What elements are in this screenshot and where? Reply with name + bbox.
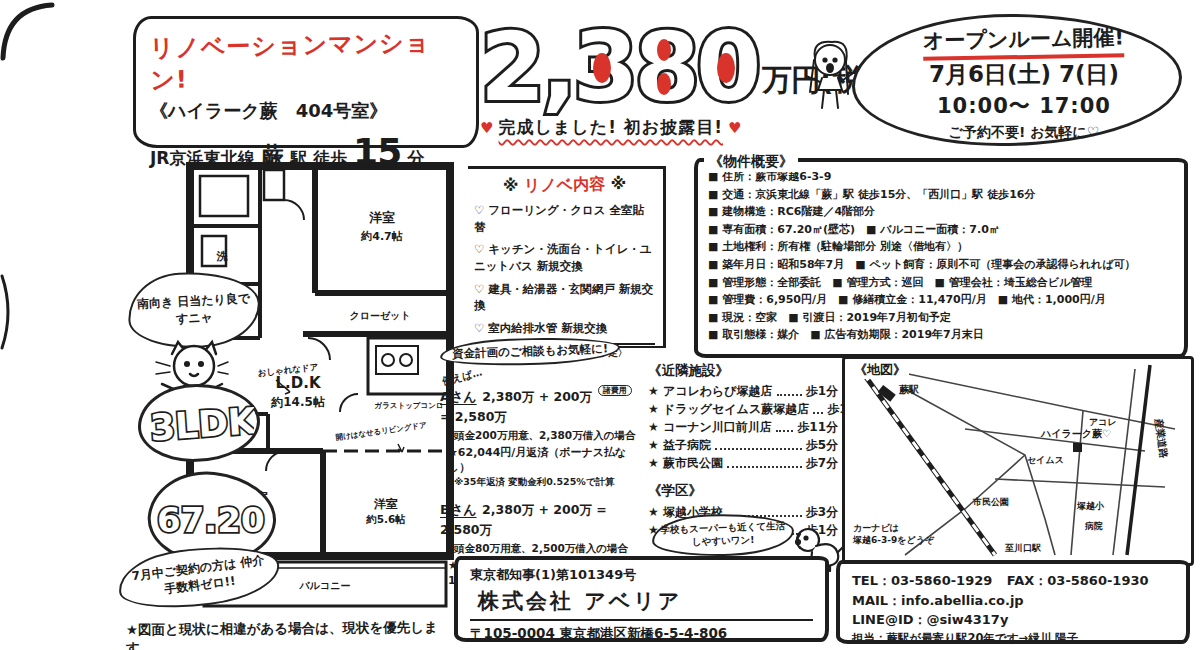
closet1-label: クローゼット (349, 310, 410, 321)
map-shop1-label: セイムス (1027, 455, 1064, 465)
price-amount: 2,380 (480, 16, 757, 116)
overview-box: 《物件概要》 ■ 住所：蕨市塚越6-3-9 ■ 交通：京浜東北線「蕨」駅 徒歩1… (694, 158, 1188, 358)
map-school-label: 塚越小 (1076, 501, 1105, 511)
contact-mail: MAIL：info.abellia.co.jp (852, 591, 1174, 611)
facility-name: ★ ドラッグセイムス蕨塚越店 (648, 400, 809, 418)
nearby-section: 《近隣施設》 ★ アコレわらび塚越店歩1分 ★ ドラッグセイムス蕨塚越店歩1分 … (648, 360, 838, 539)
overview-row: ■ 管理形態：全部委託 ■ 管理方式：巡回 ■ 管理会社：埼玉総合ビル管理 (708, 274, 1174, 292)
asterisk-icon: ※ (610, 174, 626, 193)
nearby-item: ★ 益子病院歩5分 (648, 436, 838, 454)
walk-time: 歩5分 (806, 436, 838, 454)
digit-accent (593, 53, 611, 83)
openroom-bubble: オープンルーム開催! 7月6日(土) 7(日) 10:00〜 17:00 ご予約… (852, 14, 1182, 146)
asterisk-icon: ※ (503, 176, 519, 195)
map-title: 《地図》 (851, 361, 909, 379)
nearby-item: ★ アコレわらび塚越店歩1分 (648, 382, 838, 400)
dotted-leader (777, 394, 802, 396)
facility-name: ★ 益子病院 (648, 436, 711, 454)
openroom-note: ご予約不要! お気軽に♡ (881, 124, 1167, 142)
room1-label: 洋室 (369, 210, 395, 225)
openroom-date: 7月6日(土) 7(日) (929, 61, 1119, 87)
renovation-item: ♡ 建具・給湯器・玄関網戸 新規交換 (474, 281, 655, 314)
digit-accent (657, 73, 671, 95)
ldk-bubble-art: 3LDK (144, 397, 254, 449)
map-direction-label: 至川口駅 (1004, 543, 1042, 553)
case-a-note: ※35年返済 変動金利0.525%で計算 (454, 476, 645, 489)
funding-section: 資金計画のご相談もお気軽に! 例えば… Aさん 2,380万 + 200万 諸費… (440, 338, 645, 560)
renovation-title: リノベ内容 (524, 174, 605, 194)
walk-time: 歩1分 (806, 382, 838, 400)
contact-person: 担当：蕨駅が最寄り駅20年です→緑川 陽子 (852, 630, 1174, 647)
nearby-header: 《近隣施設》 (648, 360, 838, 380)
overview-row: ■ 管理費：6,950円/月 ■ 修繕積立金：11,470円/月 ■ 地代：1,… (708, 291, 1174, 309)
map-road-label: 産業道路 (1153, 417, 1170, 460)
south-bubble-text: 南向き 日当たり良ですニャ (133, 290, 255, 330)
digit-accent (657, 39, 671, 61)
nearby-item: ★ 蕨市民公園歩7分 (648, 454, 838, 472)
case-b-cond: 頭金80万用意、2,500万借入の場合 (454, 542, 645, 556)
renovation-item: ♡ キッチン・洗面台・トイレ・ユニットバス 新規交換 (474, 241, 655, 274)
map-property-label: ハイラーク蕨♡ (1040, 428, 1111, 439)
washer-label: 洗 (216, 250, 229, 263)
overview-row: ■ 現況：空家 ■ 引渡日：2019年7月初旬予定 (708, 309, 1174, 327)
school-header: 《学区》 (648, 480, 838, 500)
title-box: リノベーションマンション! 《ハイラーク蕨 404号室》 JR京浜東北線 蕨 駅… (133, 16, 479, 148)
contact-box: TEL：03-5860-1929 FAX：03-5860-1930 MAIL：i… (836, 560, 1190, 644)
overview-row: ■ 取引態様：媒介 ■ 広告有効期限：2019年7月末日 (708, 326, 1174, 344)
overview-row: ■ 建物構造：RC6階建／4階部分 (708, 203, 1174, 221)
map-box: 《地図》 蕨駅 ハイラーク蕨♡ セイムス アコレ (842, 356, 1194, 566)
footer-disclaimer: ★図面と現状に相違がある場合は、現状を優先します。 (126, 619, 456, 650)
facility-name: ★ コーナン川口前川店 (648, 418, 772, 436)
renovation-header: ※ リノベ内容 ※ (474, 173, 655, 197)
overview-row: ■ 築年月日：昭和58年7月 ■ ペット飼育：原則不可（理事会の承認得られれば可… (708, 256, 1174, 274)
left-edge-doodle (0, 272, 16, 352)
ldk-bubble-text: 3LDK (149, 400, 254, 448)
case-b-name: Bさん (440, 502, 477, 517)
overview-row: ■ 専有面積：67.20㎡(壁芯) ■ バルコニー面積：7.0㎡ (708, 221, 1174, 239)
facility-name: ★ 蕨市民公園 (648, 454, 723, 472)
completion-text: 完成しました! 初お披露目! (499, 117, 723, 137)
map-park-label: 市民公園 (972, 497, 1009, 507)
dotted-leader (813, 412, 823, 414)
renovation-item: ♡ 室内給排水管 新規交換 (474, 320, 655, 337)
company-address: 〒105-0004 東京都港区新橋6-5-4-806 (470, 619, 813, 643)
price-amount-art: 2,380 (478, 16, 778, 116)
case-a-cond: 頭金200万用意、2,380万借入の場合 (454, 429, 645, 443)
case-a-pay: ★62,044円/月返済（ボーナス払なし） (448, 445, 645, 475)
size-bubble-text: 67.20 (157, 500, 265, 540)
walk-time: 歩11分 (797, 418, 838, 436)
case-a-formula: 2,380万 + 200万 (482, 389, 592, 404)
company-box: 東京都知事(1)第101349号 株式会社 アベリア 〒105-0004 東京都… (454, 556, 829, 642)
dotted-leader (727, 466, 802, 468)
nearby-item: ★ コーナン川口前川店歩11分 (648, 418, 838, 436)
heart-icon: ♥ (728, 119, 741, 137)
fax-number: FAX：03-5860-1930 (1007, 573, 1149, 588)
case-a-result: = 2,580万 (440, 409, 507, 424)
tel-number: TEL：03-5860-1929 (852, 573, 992, 588)
contact-line-id: LINE@ID：@siw4317y (852, 610, 1174, 630)
ldk-size: 約14.5帖 (270, 395, 326, 409)
map-hospital-label: 病院 (1084, 521, 1103, 531)
map-note-line1: カーナビは (853, 523, 899, 533)
flyer-page: リノベーションマンション! 《ハイラーク蕨 404号室》 JR京浜東北線 蕨 駅… (0, 0, 1200, 650)
corner-doodle (0, 0, 56, 62)
map-art: 蕨駅 ハイラーク蕨♡ セイムス アコレ 市民公園 塚越小 病院 産業道路 カーナ… (845, 359, 1185, 557)
balcony-label: バルコニー (299, 580, 351, 591)
walk-time: 歩7分 (806, 454, 838, 472)
overview-row: ■ 土地権利：所有権（駐輪場部分 別途〈借地有〉） (708, 238, 1174, 256)
company-name: 株式会社 アベリア (478, 587, 813, 615)
dotted-leader (776, 430, 794, 432)
room1-size: 約4.7帖 (360, 230, 403, 243)
flyer-title: リノベーションマンション! (149, 26, 462, 97)
openroom-title: オープンルーム開催! (923, 23, 1125, 61)
map-station-label: 蕨駅 (898, 384, 920, 395)
ldk-label: L.D.K (275, 374, 321, 392)
room3-label: 洋室 (373, 497, 398, 511)
digit-accent (717, 53, 735, 83)
size-bubble-art: 67.20 (150, 484, 273, 552)
heart-icon: ♥ (480, 119, 493, 137)
case-a-tag: 諸費用 (598, 385, 632, 396)
openroom-time: 10:00〜 17:00 (881, 92, 1167, 120)
room3-size: 約5.6帖 (365, 513, 406, 525)
facility-name: ★ アコレわらび塚越店 (648, 382, 773, 400)
renovation-box: ※ リノベ内容 ※ ♡ フローリング・クロス 全室貼替 ♡ キッチン・洗面台・ト… (468, 166, 666, 348)
dog-bubble-text: 学校もスーパーも近くて生活しやすいワン! (660, 520, 785, 547)
case-a-name: Aさん (440, 389, 477, 404)
overview-header: 《物件概要》 (704, 150, 798, 172)
map-shop2-label: アコレ (1089, 417, 1117, 427)
stove-note: ガラストップコンロ (374, 401, 443, 410)
contact-phone-row: TEL：03-5860-1929 FAX：03-5860-1930 (852, 571, 1174, 591)
girl-character-icon (800, 34, 856, 138)
renovation-list: ♡ フローリング・クロス 全室貼替 ♡ キッチン・洗面台・トイレ・ユニットバス … (474, 202, 655, 337)
dotted-leader (715, 448, 802, 450)
nearby-item: ★ ドラッグセイムス蕨塚越店歩1分 (648, 400, 838, 418)
building-name: 《ハイラーク蕨 404号室》 (150, 99, 462, 123)
map-note-line2: 塚越6-3-9をどうぞ (852, 535, 935, 545)
renovation-item: ♡ フローリング・クロス 全室貼替 (474, 202, 655, 235)
overview-row: ■ 交通：京浜東北線「蕨」駅 徒歩15分、「西川口」駅 徒歩16分 (708, 186, 1174, 204)
walk-time: 歩3分 (806, 503, 838, 521)
completion-banner: ♥ 完成しました! 初お披露目! ♥ (480, 116, 742, 139)
license-number: 東京都知事(1)第101349号 (470, 566, 813, 584)
funding-header: 資金計画のご相談もお気軽に! (440, 335, 621, 368)
